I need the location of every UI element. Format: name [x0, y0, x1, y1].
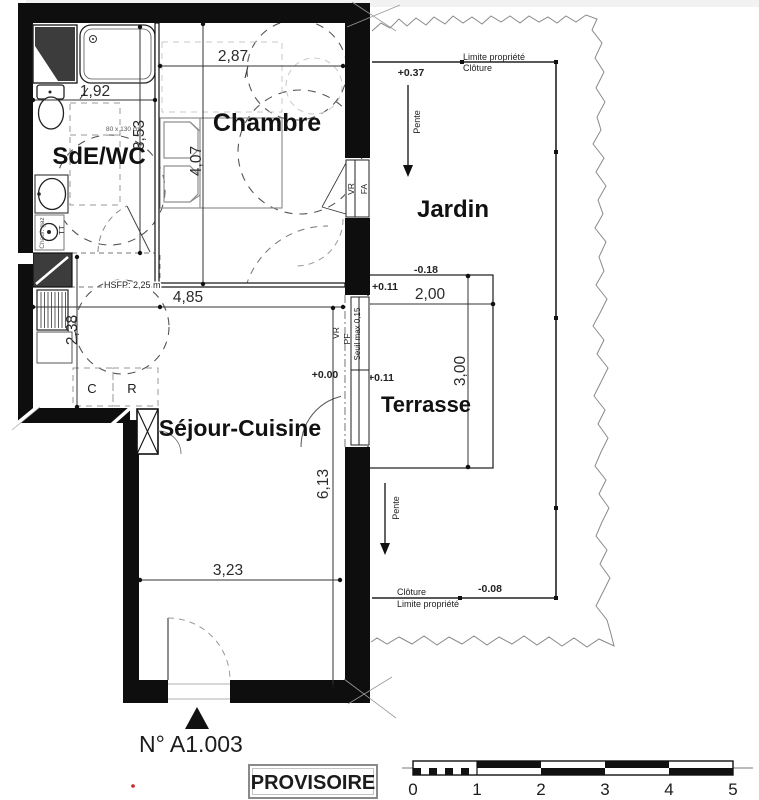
shaft-mid — [33, 253, 72, 287]
gas-heater-label: Chauf. gaz — [39, 217, 46, 248]
washbasin — [35, 175, 68, 213]
provisional-stamp-text: PROVISOIRE — [251, 772, 375, 794]
dim-kitchen-side-text: 2,38 — [64, 315, 81, 345]
shower-clearance-label: 80 x 130 cm — [106, 126, 141, 133]
wall-vent-gap — [16, 253, 33, 264]
bedroom-label: Chambre — [213, 109, 321, 137]
garden-level-bottom: -0.08 — [478, 583, 502, 595]
scale-tick-4: 4 — [664, 780, 673, 799]
property-limit-label-top: Limite propriété — [463, 52, 525, 62]
partition-bath-bedroom — [155, 23, 159, 287]
page-background — [0, 0, 759, 800]
dim-living-length-text: 6,13 — [315, 469, 332, 499]
threshold-label: Seuil max 0,15 — [353, 307, 362, 360]
hsfp-label: HSFP: 2,25 m — [104, 280, 161, 290]
fence-label-top: Clôture — [463, 63, 492, 73]
living-label: Séjour-Cuisine — [159, 415, 321, 441]
scale-tick-3: 3 — [600, 780, 609, 799]
garden-level-top: +0.37 — [398, 67, 425, 79]
bathroom-label: SdE/WC — [52, 143, 145, 170]
cooker-slot-label: C — [87, 381, 96, 396]
terrace-length-text: 3,00 — [452, 356, 469, 387]
dim-bedroom-width-text: 2,87 — [218, 48, 248, 65]
fence-label-bottom: Clôture — [397, 587, 426, 597]
unit-number: N° A1.003 — [139, 731, 243, 757]
dim-bedroom-length-text: 4,07 — [188, 146, 205, 176]
dim-living-width-text: 4,85 — [173, 289, 203, 306]
partition-bedroom-living — [158, 283, 345, 287]
terrace-level-mid: +0.11 — [368, 372, 394, 384]
fridge-slot-label: R — [127, 381, 136, 396]
garden-label: Jardin — [417, 196, 489, 223]
toilet — [37, 85, 64, 129]
tt-label: TT — [57, 225, 66, 235]
red-mark — [131, 784, 135, 788]
property-limit-label-bottom: Limite propriété — [397, 599, 459, 609]
scale-tick-0: 0 — [408, 780, 417, 799]
living-floor-level: +0.00 — [312, 369, 339, 381]
bedroom-window-fa-label: FA — [359, 183, 369, 194]
shower-tray — [80, 25, 155, 83]
dim-bath-width-text: 1,92 — [80, 83, 110, 100]
dim-living-lower-width-text: 3,23 — [213, 562, 243, 579]
provisional-stamp: PROVISOIRE — [249, 765, 377, 798]
slope-label-bottom: Pente — [391, 496, 401, 520]
shaft-top — [33, 25, 77, 83]
living-window-pf-label: PF — [342, 334, 352, 345]
slope-label-top: Pente — [412, 110, 422, 134]
terrace-width-text: 2,00 — [415, 286, 446, 303]
terrace-level-outside: -0.18 — [414, 264, 438, 276]
terrace-label: Terrasse — [381, 392, 471, 417]
scale-tick-5: 5 — [728, 780, 737, 799]
terrace-level-upper: +0.11 — [372, 281, 398, 293]
scale-tick-1: 1 — [472, 780, 481, 799]
bedroom-window-vr-label: VR — [346, 183, 356, 195]
floor-plan-drawing: Limite propriété Clôture +0.37 Pente Pen… — [0, 0, 759, 800]
scale-tick-2: 2 — [536, 780, 545, 799]
